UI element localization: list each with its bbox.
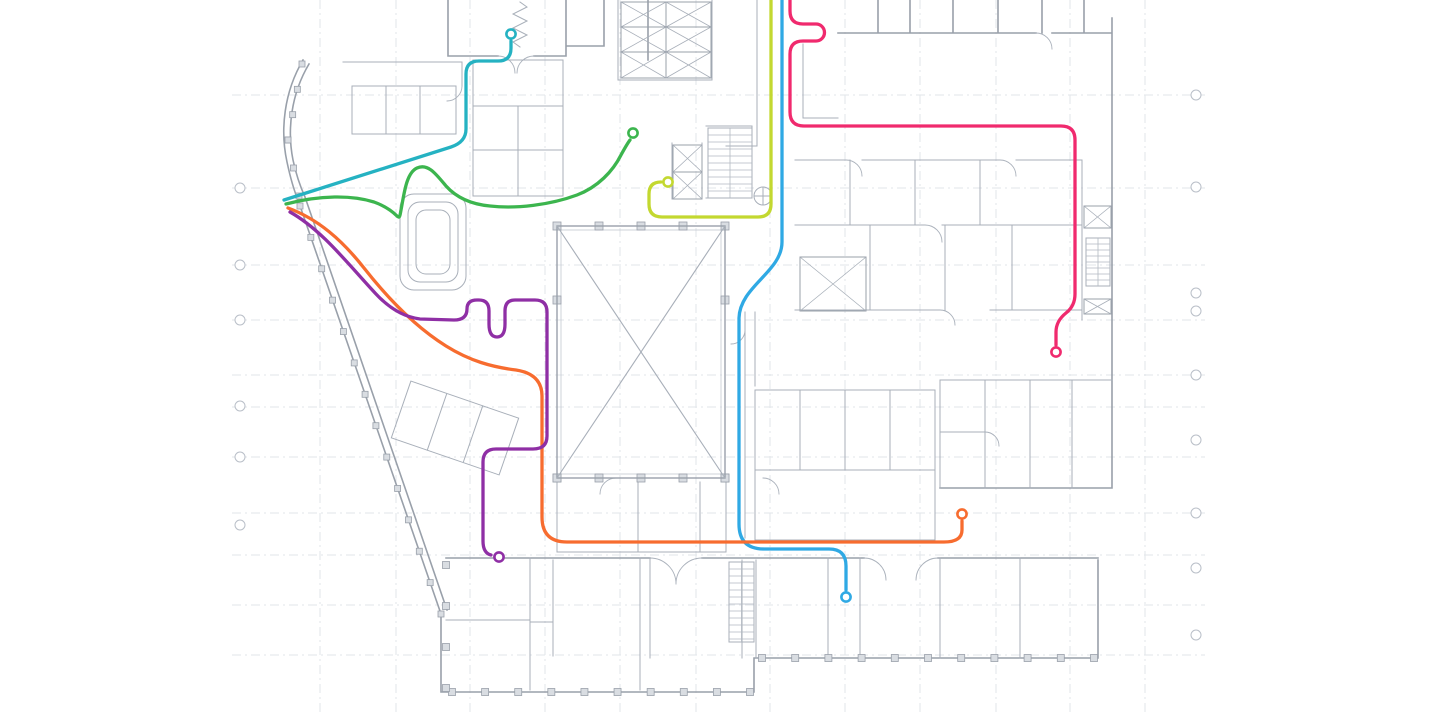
column-square bbox=[416, 548, 422, 554]
exterior-walls bbox=[284, 0, 1112, 692]
column-square bbox=[759, 655, 766, 662]
column-square bbox=[297, 203, 303, 209]
column-square bbox=[614, 689, 621, 696]
column-square bbox=[680, 689, 687, 696]
column-square bbox=[1057, 655, 1064, 662]
column-square bbox=[384, 454, 390, 460]
orange-endpoint-marker bbox=[957, 509, 966, 518]
grid-bubble bbox=[1191, 90, 1201, 100]
column-square bbox=[291, 165, 297, 171]
grid-bubble bbox=[235, 183, 245, 193]
grid-bubble bbox=[1191, 563, 1201, 573]
column-square bbox=[362, 391, 368, 397]
expansion-joint-symbol bbox=[513, 2, 527, 47]
grid-bubble bbox=[235, 520, 245, 530]
column-square bbox=[351, 360, 357, 366]
grid-bubble bbox=[235, 401, 245, 411]
xbox-cross bbox=[666, 52, 711, 78]
plan-detail-layer bbox=[285, 2, 1111, 696]
floor-plan bbox=[284, 0, 1112, 692]
teal-endpoint-marker bbox=[506, 29, 515, 38]
column-square bbox=[443, 685, 450, 692]
column-square bbox=[891, 655, 898, 662]
rotated-room-cluster bbox=[391, 381, 518, 475]
column-square bbox=[713, 689, 720, 696]
grid-bubble bbox=[1191, 288, 1201, 298]
column-target-symbol bbox=[754, 187, 772, 205]
column-square bbox=[290, 112, 296, 118]
route-green bbox=[286, 140, 630, 217]
column-square bbox=[299, 61, 305, 67]
xbox-cross bbox=[621, 2, 666, 27]
column-square bbox=[925, 655, 932, 662]
grid-bubble bbox=[235, 315, 245, 325]
column-square bbox=[330, 297, 336, 303]
xbox-cross bbox=[621, 52, 666, 78]
grid-bubble bbox=[1191, 306, 1201, 316]
column-square bbox=[548, 689, 555, 696]
xbox-cross bbox=[800, 257, 866, 311]
column-square bbox=[958, 655, 965, 662]
column-square bbox=[1091, 655, 1098, 662]
column-square bbox=[515, 689, 522, 696]
xbox-cross bbox=[666, 27, 711, 52]
grid-bubble bbox=[235, 260, 245, 270]
route-pink bbox=[790, 0, 1075, 345]
xbox-cross bbox=[557, 226, 725, 478]
column-square bbox=[991, 655, 998, 662]
xbox-cross bbox=[621, 27, 666, 52]
column-square bbox=[340, 329, 346, 335]
column-square bbox=[747, 689, 754, 696]
grid-bubble bbox=[1191, 508, 1201, 518]
column-square bbox=[405, 517, 411, 523]
routes-layer bbox=[284, 0, 1075, 602]
xbox-cross bbox=[673, 172, 702, 199]
xbox-cross bbox=[1084, 206, 1111, 228]
column-square bbox=[427, 580, 433, 586]
xbox-cross bbox=[673, 145, 702, 172]
grid-bubble bbox=[235, 452, 245, 462]
floor-plan-canvas bbox=[0, 0, 1440, 720]
column-square bbox=[395, 485, 401, 491]
blue-endpoint-marker bbox=[841, 592, 850, 601]
green-endpoint-marker bbox=[628, 128, 637, 137]
column-square bbox=[792, 655, 799, 662]
purple-endpoint-marker bbox=[494, 552, 503, 561]
column-square bbox=[438, 611, 444, 617]
floor-plan-svg bbox=[0, 0, 1440, 720]
grid-bubble bbox=[1191, 630, 1201, 640]
xbox-cross bbox=[666, 2, 711, 27]
xbox-cross bbox=[1084, 299, 1111, 314]
lime-endpoint-marker bbox=[663, 177, 672, 186]
column-square bbox=[285, 137, 291, 143]
column-square bbox=[581, 689, 588, 696]
grid-layer bbox=[232, 0, 1205, 716]
column-square bbox=[308, 234, 314, 240]
pink-endpoint-marker bbox=[1051, 347, 1060, 356]
column-square bbox=[825, 655, 832, 662]
column-square bbox=[858, 655, 865, 662]
route-teal bbox=[284, 41, 511, 200]
ramp-terraces bbox=[400, 194, 466, 290]
column-square bbox=[443, 603, 450, 610]
column-square bbox=[482, 689, 489, 696]
grid-bubble bbox=[1191, 182, 1201, 192]
column-square bbox=[294, 86, 300, 92]
column-square bbox=[647, 689, 654, 696]
column-square bbox=[443, 644, 450, 651]
interior-walls bbox=[343, 0, 1112, 690]
column-square bbox=[319, 266, 325, 272]
column-square bbox=[1024, 655, 1031, 662]
grid-bubble bbox=[1191, 370, 1201, 380]
door-arcs bbox=[447, 33, 1052, 584]
column-square bbox=[443, 562, 450, 569]
column-square bbox=[373, 423, 379, 429]
grid-bubble bbox=[1191, 435, 1201, 445]
